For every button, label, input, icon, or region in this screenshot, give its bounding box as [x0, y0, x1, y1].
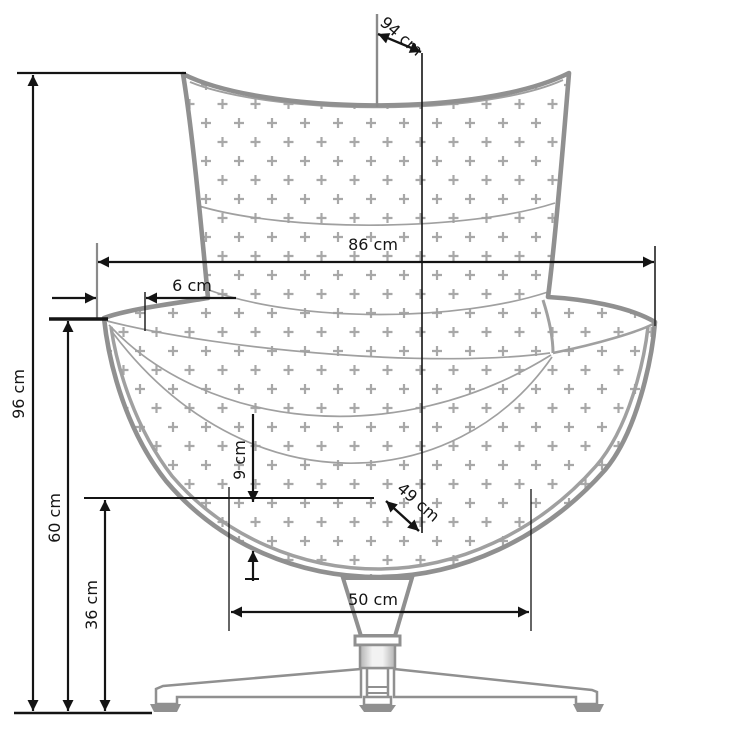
chair-shell	[80, 60, 680, 590]
base-center-foot	[364, 697, 391, 705]
label-base-width: 50 cm	[348, 590, 398, 609]
base-collar	[355, 636, 400, 645]
base-stem	[360, 645, 395, 668]
base-center-foot-pad	[359, 705, 396, 712]
label-total-height: 96 cm	[9, 369, 28, 419]
chair-dimension-diagram: 96 cm 60 cm 36 cm 86 cm 6 cm 94 cm 49 cm…	[0, 0, 744, 736]
upholstery-pattern	[80, 60, 680, 590]
label-cushion-thickness: 9 cm	[230, 440, 249, 480]
base-left-foot-pad	[150, 704, 181, 712]
base-right-foot-pad	[573, 704, 604, 712]
label-seat-height: 36 cm	[82, 580, 101, 630]
base-right-leg	[394, 669, 597, 704]
label-back-width: 86 cm	[348, 235, 398, 254]
label-armrest-height: 60 cm	[45, 493, 64, 543]
base-left-leg	[156, 669, 361, 704]
label-wing-inset: 6 cm	[172, 276, 212, 295]
diagram-canvas: 96 cm 60 cm 36 cm 86 cm 6 cm 94 cm 49 cm…	[0, 0, 744, 736]
